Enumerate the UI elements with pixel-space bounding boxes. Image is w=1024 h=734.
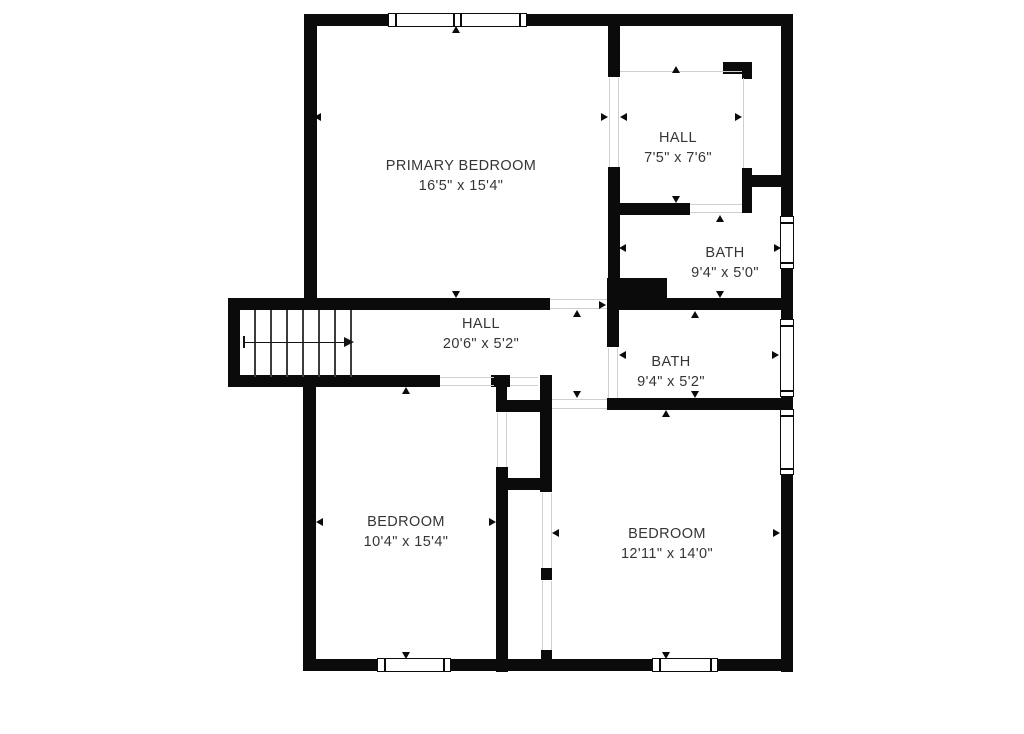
room-label-hall-main: HALL 20'6" x 5'2" xyxy=(443,314,519,354)
window-mullion xyxy=(384,659,386,671)
stair-arrow-head xyxy=(344,337,354,347)
window-mullion xyxy=(710,659,712,671)
room-size: 20'6" x 5'2" xyxy=(443,334,519,354)
measure-tick xyxy=(716,291,724,298)
measure-tick xyxy=(662,652,670,659)
measure-tick xyxy=(452,26,460,33)
measure-tick xyxy=(316,518,323,526)
room-size: 16'5" x 15'4" xyxy=(386,176,537,196)
measure-tick xyxy=(620,113,627,121)
room-label-bedroom-right: BEDROOM 12'11" x 14'0" xyxy=(621,524,713,564)
room-name: BEDROOM xyxy=(364,512,449,532)
room-label-bedroom-left: BEDROOM 10'4" x 15'4" xyxy=(364,512,449,552)
threshold-line xyxy=(510,385,538,386)
wall-stairwell-left xyxy=(228,298,240,387)
window-mullion xyxy=(781,390,793,392)
room-name: HALL xyxy=(443,314,519,334)
wall-closet-left-upper xyxy=(496,387,507,412)
room-name: BATH xyxy=(691,243,759,263)
floor-plan: PRIMARY BEDROOM 16'5" x 15'4" HALL 7'5" … xyxy=(0,0,1024,734)
room-label-bath-upper: BATH 9'4" x 5'0" xyxy=(691,243,759,283)
room-size: 12'11" x 14'0" xyxy=(621,544,713,564)
room-label-bath-lower: BATH 9'4" x 5'2" xyxy=(637,352,705,392)
measure-tick xyxy=(773,529,780,537)
measure-tick xyxy=(573,310,581,317)
measure-tick xyxy=(619,244,626,252)
measure-tick xyxy=(314,113,321,121)
room-label-hall-upper: HALL 7'5" x 7'6" xyxy=(644,128,712,168)
wall-bath-nook-horizontal xyxy=(750,175,781,187)
window-bottom-bedroom-left xyxy=(377,658,451,672)
threshold-line xyxy=(551,581,552,650)
threshold-line xyxy=(440,377,494,378)
window-right-bedroom xyxy=(780,409,794,475)
measure-tick xyxy=(662,410,670,417)
measure-tick xyxy=(672,66,680,73)
threshold-line xyxy=(608,348,609,398)
room-name: BEDROOM xyxy=(621,524,713,544)
wall-primary-hall-divider-upper xyxy=(608,25,620,77)
threshold-line xyxy=(497,413,498,467)
threshold-line xyxy=(552,408,607,409)
measure-tick xyxy=(601,113,608,121)
threshold-line xyxy=(550,299,607,300)
measure-tick xyxy=(552,529,559,537)
window-mullion xyxy=(781,222,793,224)
measure-tick xyxy=(619,351,626,359)
staircase xyxy=(240,310,352,377)
wall-exterior-left-upper xyxy=(304,14,317,310)
window-right-bath-lower xyxy=(780,319,794,397)
window-mullion xyxy=(781,468,793,470)
boundary-line xyxy=(743,78,744,168)
window-mullion xyxy=(781,325,793,327)
wall-bedroom-right-jamb-upper xyxy=(541,568,552,580)
wall-bath-lower-left xyxy=(607,310,619,347)
room-size: 9'4" x 5'0" xyxy=(691,263,759,283)
room-label-primary-bedroom: PRIMARY BEDROOM 16'5" x 15'4" xyxy=(386,156,537,196)
threshold-line xyxy=(690,212,742,213)
stair-tread xyxy=(302,310,304,377)
window-mullion xyxy=(781,415,793,417)
wall-bath-solid-block xyxy=(607,278,667,310)
threshold-line xyxy=(542,581,543,650)
threshold-line xyxy=(618,78,619,167)
wall-between-baths xyxy=(660,298,781,310)
wall-bedroom-right-jamb-lower xyxy=(541,650,552,662)
measure-tick xyxy=(716,215,724,222)
measure-tick xyxy=(402,652,410,659)
boundary-line xyxy=(620,71,742,72)
measure-tick xyxy=(452,291,460,298)
wall-exterior-left-lower xyxy=(303,375,316,671)
wall-exterior-top xyxy=(305,14,793,26)
measure-tick xyxy=(599,301,606,309)
window-top-primary-bedroom xyxy=(388,13,527,27)
window-mullion xyxy=(395,14,397,26)
threshold-line xyxy=(617,348,618,398)
threshold-line xyxy=(690,204,742,205)
wall-closet-right xyxy=(540,375,552,492)
window-bottom-bedroom-right xyxy=(652,658,718,672)
threshold-line xyxy=(609,78,610,167)
wall-primary-hall-divider-lower xyxy=(608,167,620,280)
measure-tick xyxy=(573,391,581,398)
window-mullion xyxy=(519,14,521,26)
window-mullion xyxy=(659,659,661,671)
window-mullion xyxy=(781,262,793,264)
threshold-line xyxy=(506,413,507,467)
measure-tick xyxy=(672,196,680,203)
measure-tick xyxy=(735,113,742,121)
threshold-line xyxy=(440,385,494,386)
wall-hall-closet-v xyxy=(742,62,752,79)
measure-tick xyxy=(489,518,496,526)
stair-tread xyxy=(318,310,320,377)
stair-tread xyxy=(286,310,288,377)
stair-direction-arrow xyxy=(243,342,349,344)
room-name: BATH xyxy=(637,352,705,372)
threshold-line xyxy=(542,493,543,568)
room-name: PRIMARY BEDROOM xyxy=(386,156,537,176)
measure-tick xyxy=(691,311,699,318)
measure-tick xyxy=(772,351,779,359)
room-name: HALL xyxy=(644,128,712,148)
room-size: 10'4" x 15'4" xyxy=(364,532,449,552)
wall-bath-upper-top xyxy=(608,203,690,215)
window-right-bath-upper xyxy=(780,216,794,269)
stair-tread xyxy=(270,310,272,377)
threshold-line xyxy=(510,377,538,378)
wall-bedroom-left-right xyxy=(496,467,508,672)
window-mullion xyxy=(453,14,455,26)
window-mullion xyxy=(460,14,462,26)
window-mullion xyxy=(443,659,445,671)
measure-tick xyxy=(774,244,781,252)
room-size: 7'5" x 7'6" xyxy=(644,148,712,168)
stair-tread xyxy=(254,310,256,377)
measure-tick xyxy=(691,391,699,398)
threshold-line xyxy=(552,399,607,400)
room-size: 9'4" x 5'2" xyxy=(637,372,705,392)
wall-stairwell-top xyxy=(228,298,550,310)
stair-tread xyxy=(334,310,336,377)
wall-bedroom-right-top xyxy=(607,398,781,410)
measure-tick xyxy=(402,387,410,394)
